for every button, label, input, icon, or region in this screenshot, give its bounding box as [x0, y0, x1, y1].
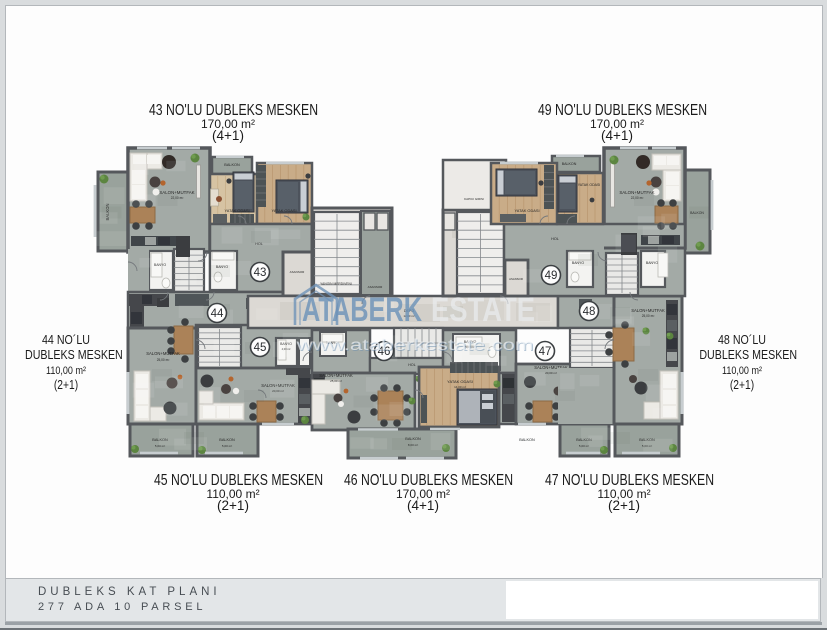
svg-text:SALON+MUTFAK: SALON+MUTFAK: [146, 351, 180, 356]
svg-text:YATAK ODASI: YATAK ODASI: [514, 208, 539, 213]
svg-text:ASANSOR: ASANSOR: [290, 270, 306, 274]
svg-text:25,00 m²: 25,00 m²: [642, 314, 655, 318]
svg-text:25,00 m²: 25,00 m²: [330, 379, 342, 383]
svg-text:BALKON: BALKON: [562, 162, 577, 166]
svg-text:YATAK ODASI: YATAK ODASI: [271, 208, 296, 213]
svg-text:BALKON: BALKON: [224, 163, 240, 167]
svg-text:SALON+MUTFAK: SALON+MUTFAK: [631, 308, 665, 313]
svg-text:YANGIN MERDIVENI: YANGIN MERDIVENI: [320, 282, 352, 286]
svg-text:BANYO: BANYO: [646, 261, 659, 265]
svg-text:YATAK ODASI: YATAK ODASI: [447, 379, 473, 384]
svg-text:20,00 m²: 20,00 m²: [545, 371, 557, 375]
svg-text:25,00 m²: 25,00 m²: [157, 358, 170, 362]
svg-text:HOL: HOL: [408, 363, 415, 367]
svg-text:ATABERK: ATABERK: [302, 291, 422, 329]
svg-text:KAPICI GIRISI: KAPICI GIRISI: [464, 197, 484, 201]
svg-text:47: 47: [539, 346, 552, 358]
svg-text:BALKON: BALKON: [219, 438, 235, 442]
svg-text:SALON+MUTFAK: SALON+MUTFAK: [319, 373, 353, 378]
svg-text:5,00 m²: 5,00 m²: [579, 444, 589, 448]
svg-text:ESTATE: ESTATE: [431, 291, 535, 329]
svg-text:44: 44: [211, 308, 224, 320]
svg-text:48: 48: [583, 306, 596, 318]
svg-text:HOL: HOL: [551, 237, 559, 241]
svg-text:YATAK ODASI: YATAK ODASI: [578, 183, 601, 187]
svg-text:BALKON: BALKON: [519, 438, 535, 442]
svg-text:ASANSOR: ASANSOR: [509, 277, 523, 281]
svg-text:www.ataberkestate.com: www.ataberkestate.com: [295, 337, 533, 354]
svg-text:43: 43: [254, 267, 267, 279]
svg-text:YATAK ODASI: YATAK ODASI: [224, 208, 249, 213]
svg-text:ASANSOR: ASANSOR: [368, 285, 384, 289]
svg-text:45: 45: [254, 342, 267, 354]
svg-text:49: 49: [545, 270, 558, 282]
svg-text:5,00 m²: 5,00 m²: [222, 444, 232, 448]
svg-text:14,00 m²: 14,00 m²: [454, 385, 466, 389]
